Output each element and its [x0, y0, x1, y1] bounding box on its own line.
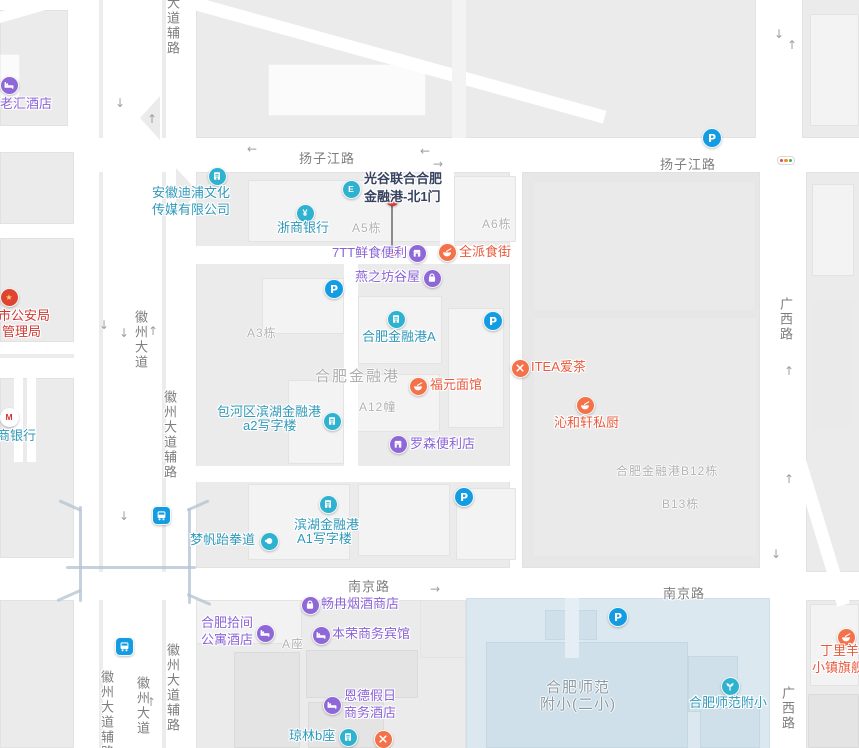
poi-label[interactable]: 管理局	[2, 325, 41, 339]
poi-label[interactable]: 老汇酒店	[0, 97, 52, 111]
leaf-icon[interactable]	[721, 677, 740, 696]
road-label: 南京路	[348, 576, 390, 595]
building-icon[interactable]	[339, 728, 358, 747]
road-direction-arrow: ↑	[784, 472, 794, 486]
poi-label[interactable]: 安徽迪浦文化	[152, 186, 230, 200]
svg-text:★: ★	[5, 293, 12, 302]
road-label: 扬子江路	[660, 154, 716, 173]
fist-icon[interactable]	[260, 532, 279, 551]
emblem-icon[interactable]: ★	[0, 288, 19, 307]
road-direction-arrow: ←	[420, 144, 430, 158]
road-label: 徽州大道	[133, 676, 152, 736]
parking-icon[interactable]: P	[483, 311, 503, 331]
road-direction-arrow: ↓	[771, 547, 781, 561]
poi-label[interactable]: 浙商银行	[277, 221, 329, 235]
parking-icon[interactable]: P	[608, 607, 628, 627]
poi-label[interactable]: 燕之坊谷屋	[355, 270, 420, 284]
poi-label[interactable]: 金融港-北1门	[364, 190, 441, 204]
hotel-icon[interactable]	[256, 624, 275, 643]
building-icon[interactable]	[387, 310, 406, 329]
bus-stop-icon[interactable]	[152, 506, 171, 525]
road-direction-arrow: ↓	[99, 318, 109, 332]
bowl-icon[interactable]	[576, 396, 595, 415]
road-direction-arrow: ↑	[787, 38, 797, 52]
building-label: A6栋	[482, 215, 512, 232]
poi-label[interactable]: 7TT鲜食便利	[332, 246, 407, 260]
poi-label[interactable]: 商务酒店	[344, 706, 396, 720]
building-label: A12幢	[359, 398, 396, 415]
poi-label[interactable]: 合肥拾间	[201, 616, 253, 630]
cross-icon[interactable]	[374, 730, 393, 748]
bag-icon[interactable]	[423, 269, 442, 288]
poi-label[interactable]: A1写字楼	[297, 532, 352, 546]
svg-text:¥: ¥	[302, 208, 307, 218]
cross-icon[interactable]	[511, 359, 530, 378]
road-direction-arrow: ↓	[774, 27, 784, 41]
building-label: A座	[282, 635, 304, 652]
road-direction-arrow: ↓	[119, 326, 129, 340]
road-label: 扬子江路	[299, 148, 355, 167]
svg-text:M: M	[5, 412, 12, 422]
building-icon[interactable]	[323, 412, 342, 431]
poi-label[interactable]: 合肥金融港A	[362, 330, 436, 344]
map-labels-layer: ↓↑←←→↓↑↓↓↑↑↑↓→↓↑扬子江路扬子江路南京路南京路徽州大道徽州大道大道…	[0, 0, 859, 748]
building-label: A3栋	[247, 324, 277, 341]
hotel-icon[interactable]	[323, 696, 342, 715]
cmb-icon[interactable]: M	[0, 408, 19, 427]
road-label: 广西路	[778, 686, 797, 731]
parking-icon[interactable]: P	[454, 487, 474, 507]
map-canvas[interactable]: ↓↑←←→↓↑↓↓↑↑↑↓→↓↑扬子江路扬子江路南京路南京路徽州大道徽州大道大道…	[0, 0, 859, 748]
road-direction-arrow: ↑	[147, 112, 157, 126]
building-label: B13栋	[662, 495, 699, 512]
poi-label[interactable]: 恩德假日	[344, 689, 396, 703]
poi-label[interactable]: 小镇旗舰	[812, 661, 859, 675]
road-label: 徽州大道辅路	[163, 643, 182, 733]
building-label: 合肥金融港B12栋	[616, 462, 718, 479]
poi-label[interactable]: 琼林b座	[289, 729, 335, 743]
poi-label[interactable]: 丁里羊	[820, 644, 859, 658]
road-direction-arrow: ↑	[784, 364, 794, 378]
road-label: 广西路	[776, 297, 795, 342]
poi-label[interactable]: ITEA爱茶	[531, 360, 586, 374]
poi-label[interactable]: 传媒有限公司	[152, 203, 230, 217]
road-direction-arrow: →	[433, 157, 443, 171]
road-direction-arrow: ↓	[119, 509, 129, 523]
bowl-icon[interactable]	[438, 243, 457, 262]
poi-label[interactable]: 商银行	[0, 429, 36, 443]
poi-label[interactable]: 梦帆跆拳道	[190, 533, 255, 547]
road-direction-arrow: ←	[247, 142, 257, 156]
road-label: 徽州大道	[131, 310, 150, 370]
road-label: 徽州大道辅路	[97, 670, 116, 748]
poi-label[interactable]: 光谷联合合肥	[364, 172, 442, 186]
poi-label[interactable]: 本荣商务宾馆	[332, 627, 410, 641]
poi-label[interactable]: 畅冉烟酒商店	[321, 597, 399, 611]
building-label: 合肥金融港	[315, 365, 400, 386]
road-label: 南京路	[663, 583, 705, 602]
poi-label[interactable]: 沁和轩私厨	[554, 416, 619, 430]
parking-icon[interactable]: P	[702, 128, 722, 148]
poi-label[interactable]: 市公安局	[0, 309, 50, 323]
entrance-icon[interactable]: E	[342, 180, 361, 199]
building-icon[interactable]	[208, 167, 227, 186]
building-label: 附小(二小)	[540, 693, 616, 714]
poi-label[interactable]: 福元面馆	[430, 378, 482, 392]
road-label: 徽州大道辅路	[160, 390, 179, 480]
road-direction-arrow: ↓	[115, 96, 125, 110]
gate-marker-stem	[391, 205, 393, 246]
building-icon[interactable]	[319, 495, 338, 514]
hotel-icon[interactable]	[0, 76, 19, 95]
svg-text:E: E	[348, 184, 354, 194]
poi-label[interactable]: a2写字楼	[243, 419, 296, 433]
poi-label[interactable]: 罗森便利店	[410, 437, 475, 451]
bowl-icon[interactable]	[409, 377, 428, 396]
bag-icon[interactable]	[301, 596, 320, 615]
hotel-icon[interactable]	[312, 626, 331, 645]
poi-label[interactable]: 公寓酒店	[201, 633, 253, 647]
store-icon[interactable]	[408, 244, 427, 263]
road-direction-arrow: →	[430, 582, 440, 596]
traffic-light-icon	[777, 156, 795, 165]
building-label: A5栋	[352, 219, 382, 236]
bus-stop-icon[interactable]	[115, 637, 134, 656]
poi-label[interactable]: 合肥师范附小	[689, 696, 767, 710]
poi-label[interactable]: 全派食街	[459, 245, 511, 259]
store-icon[interactable]	[389, 435, 408, 454]
parking-icon[interactable]: P	[324, 279, 344, 299]
road-label: 大道辅路	[163, 0, 182, 56]
